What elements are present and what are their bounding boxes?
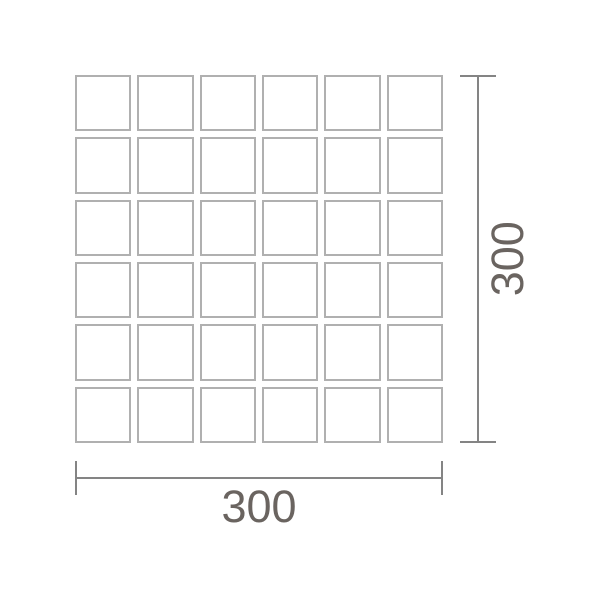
tile-cell [137, 75, 193, 131]
tile-cell [200, 137, 256, 193]
width-dimension-line [75, 477, 443, 479]
tile-cell [262, 137, 318, 193]
tile-cell [387, 200, 443, 256]
tile-cell [324, 324, 380, 380]
height-dimension-label-wrap: 300 [486, 75, 530, 443]
tile-cell [262, 200, 318, 256]
tile-cell [200, 75, 256, 131]
tile-cell [200, 262, 256, 318]
tile-cell [262, 387, 318, 443]
tile-cell [75, 75, 131, 131]
tile-cell [75, 387, 131, 443]
tile-cell [324, 262, 380, 318]
tile-cell [137, 324, 193, 380]
tile-cell [75, 324, 131, 380]
tile-cell [200, 387, 256, 443]
tile-cell [387, 324, 443, 380]
tile-cell [137, 387, 193, 443]
tile-cell [200, 324, 256, 380]
tile-cell [262, 262, 318, 318]
tile-cell [324, 200, 380, 256]
tile-cell [75, 200, 131, 256]
width-dimension-label: 300 [75, 482, 443, 532]
height-dimension-line [477, 75, 479, 443]
tile-cell [75, 262, 131, 318]
tile-grid [75, 75, 443, 443]
dimension-diagram: 300 300 [0, 0, 600, 600]
tile-cell [137, 200, 193, 256]
tile-cell [324, 387, 380, 443]
tile-cell [75, 137, 131, 193]
tile-cell [387, 75, 443, 131]
tile-cell [262, 75, 318, 131]
height-dimension-label: 300 [483, 221, 533, 296]
tile-cell [262, 324, 318, 380]
tile-cell [387, 137, 443, 193]
tile-cell [387, 387, 443, 443]
tile-cell [200, 200, 256, 256]
tile-cell [137, 137, 193, 193]
tile-cell [324, 137, 380, 193]
tile-cell [137, 262, 193, 318]
tile-cell [324, 75, 380, 131]
tile-cell [387, 262, 443, 318]
